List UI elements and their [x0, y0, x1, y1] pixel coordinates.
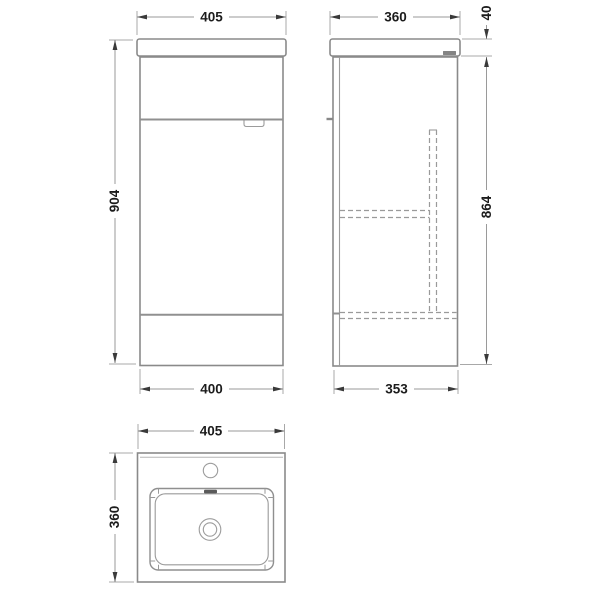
dimension-front-bottom-width: 400	[140, 369, 283, 397]
dimension-front-top-width: 405	[137, 10, 286, 36]
dimension-worktop-thickness: 40	[461, 5, 494, 56]
dimension-side-bottom-depth: 353	[334, 370, 458, 397]
side-view: 360 40 864 353	[327, 5, 495, 396]
cabinet-body-front	[140, 57, 283, 366]
overflow-slot	[204, 490, 217, 494]
dimension-plan-depth: 360	[107, 453, 134, 582]
plan-view: 405 360	[107, 424, 285, 583]
front-view: 405 904 400	[107, 10, 286, 397]
dim-label-side-top-depth: 360	[384, 10, 407, 25]
basin-outer-rim	[150, 489, 274, 571]
dimension-side-body-height: 864	[460, 57, 494, 365]
dimension-plan-width: 405	[138, 424, 285, 450]
cabinet-body-side	[333, 57, 458, 366]
dimension-front-height: 904	[107, 40, 136, 364]
dim-label-side-bottom-depth: 353	[385, 382, 408, 397]
dim-label-front-top-width: 405	[200, 10, 223, 25]
worktop-front	[137, 39, 286, 56]
dim-label-worktop-thickness: 40	[479, 5, 494, 20]
technical-drawing-canvas: 405 904 400	[0, 0, 600, 600]
dim-label-front-bottom-width: 400	[200, 382, 223, 397]
dim-label-plan-depth: 360	[107, 506, 122, 529]
dim-label-plan-width: 405	[200, 424, 223, 439]
dim-label-front-height: 904	[107, 189, 122, 212]
dim-label-side-body-height: 864	[479, 195, 494, 218]
worktop-side	[330, 39, 460, 56]
dimension-side-top-depth: 360	[330, 10, 460, 36]
drawing-sheet: 405 904 400	[0, 0, 600, 600]
stamp-mark	[443, 51, 456, 55]
